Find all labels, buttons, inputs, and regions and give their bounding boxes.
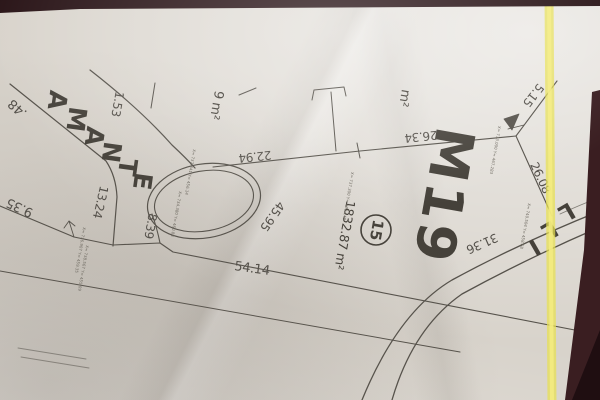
vertex-coordinates-label: X= 733.000 Y= 467.283: [489, 126, 502, 175]
dimension-label: 26.34: [404, 128, 438, 145]
street-name-letter: E: [127, 171, 158, 192]
dimension-label: 54.14: [233, 259, 270, 279]
cul-de-sac-circle: [141, 155, 266, 248]
dimension-label: 22.94: [238, 148, 272, 165]
dimension-label: 9.35: [4, 194, 36, 219]
cul-de-sac-circle: [150, 163, 259, 239]
dimension-label: 1.53: [108, 90, 126, 118]
dimension-label: 13.24: [90, 185, 111, 220]
area-label-partial: 9 m²: [206, 89, 226, 120]
boundary-line: [239, 88, 256, 95]
photo-edge-top: [0, 0, 600, 13]
photo-of-survey-plat: M191832.87 m²m²9 m²1.53.489.3513.248.392…: [0, 0, 600, 400]
boundary-line: [0, 271, 460, 352]
street-name-partial-letter: L: [553, 197, 579, 227]
boundary-line: [21, 357, 89, 368]
dimension-label: 5.15: [520, 81, 547, 110]
boundary-line: [331, 92, 336, 151]
survey-plan-drawing: M191832.87 m²m²9 m²1.53.489.3513.248.392…: [0, 0, 600, 400]
street-name-partial-letter: I: [524, 233, 544, 260]
boundary-line: [151, 83, 155, 108]
area-label-partial: m²: [395, 88, 413, 108]
dimension-label: .48: [6, 96, 31, 120]
boundary-line: [18, 348, 86, 359]
lot-number-badge: 15: [366, 218, 387, 242]
dimension-label: 8.39: [141, 212, 159, 240]
vertex-triangle-marker: [504, 114, 519, 130]
boundary-line: [312, 87, 346, 100]
dimension-label: 45.95: [257, 199, 287, 234]
boundary-line: [0, 206, 585, 332]
